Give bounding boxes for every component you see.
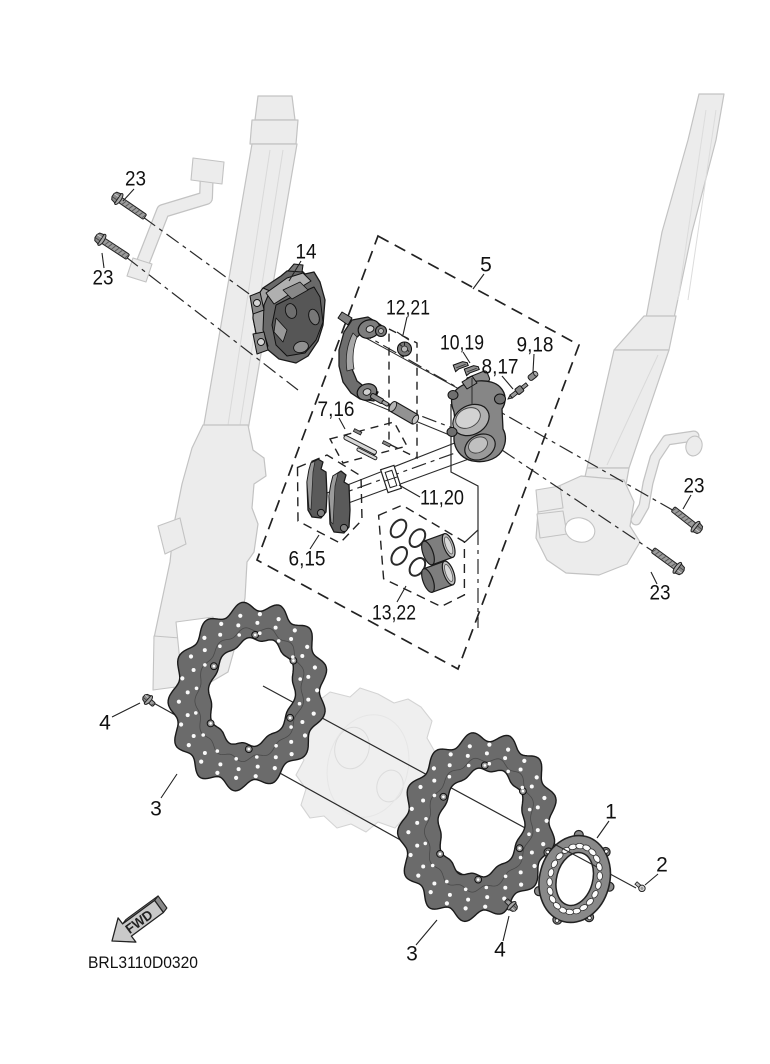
svg-text:23: 23 xyxy=(125,168,146,191)
svg-text:2: 2 xyxy=(656,854,668,877)
svg-text:3: 3 xyxy=(406,943,418,966)
svg-text:4: 4 xyxy=(99,712,111,735)
svg-text:13,22: 13,22 xyxy=(372,602,416,625)
svg-text:9,18: 9,18 xyxy=(517,334,554,357)
svg-text:10,19: 10,19 xyxy=(440,332,484,355)
svg-text:23: 23 xyxy=(93,267,114,290)
svg-text:BRL3110D0320: BRL3110D0320 xyxy=(88,953,198,972)
svg-text:23: 23 xyxy=(650,582,671,605)
svg-text:5: 5 xyxy=(480,254,492,277)
svg-text:1: 1 xyxy=(605,801,617,824)
svg-text:4: 4 xyxy=(494,939,506,962)
svg-text:7,16: 7,16 xyxy=(318,398,355,421)
svg-text:12,21: 12,21 xyxy=(386,297,430,320)
svg-text:3: 3 xyxy=(150,798,162,821)
svg-text:8,17: 8,17 xyxy=(482,356,519,379)
svg-text:14: 14 xyxy=(296,241,317,264)
svg-text:11,20: 11,20 xyxy=(420,487,464,510)
svg-text:23: 23 xyxy=(684,475,705,498)
svg-text:6,15: 6,15 xyxy=(289,548,326,571)
